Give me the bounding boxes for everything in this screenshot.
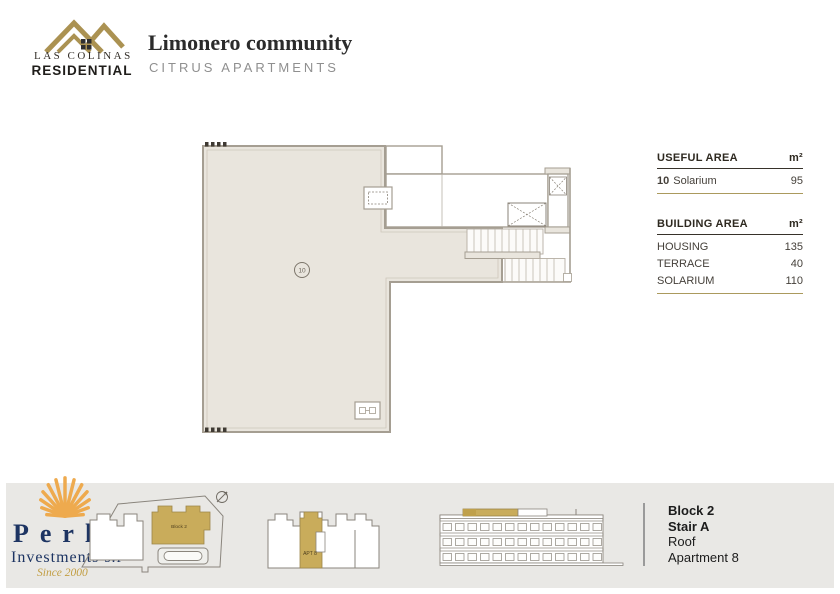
page-title: Limonero community (148, 30, 352, 56)
building-area-table: BUILDING AREA m² HOUSING 135 TERRACE 40 … (657, 218, 803, 294)
block-2-map-label: Block 2 (171, 524, 187, 530)
roof-structure (386, 146, 442, 174)
row-label: TERRACE (657, 258, 710, 270)
row-label: HOUSING (657, 241, 708, 253)
brand-tagline: RESIDENTIAL (30, 63, 134, 78)
site-plan-map: Block 2 (78, 488, 233, 580)
location-floor-line: Roof (668, 534, 739, 550)
location-block-line: Block 2 (668, 503, 739, 519)
table-row: 10Solarium 95 (657, 172, 803, 189)
location-block: Block 2 Stair A Roof Apartment 8 (668, 503, 739, 565)
footer-divider (643, 503, 645, 566)
table-row: TERRACE 40 (657, 255, 803, 272)
row-value: 135 (785, 241, 803, 253)
room-number-label: 10 (298, 268, 306, 275)
row-value: 95 (791, 175, 803, 187)
floor-strip-diagram: APT 8 (262, 500, 392, 575)
useful-area-unit: m² (789, 152, 803, 164)
building-area-unit: m² (789, 218, 803, 230)
row-value: 110 (785, 275, 803, 287)
row-value: 40 (791, 258, 803, 270)
brand-name: LAS COLINAS (34, 50, 130, 62)
location-stair-line: Stair A (668, 519, 739, 535)
block-1-footprint (90, 514, 143, 560)
row-number: 10 (657, 175, 669, 187)
useful-area-title: USEFUL AREA (657, 152, 738, 164)
building-elevation-diagram (437, 500, 627, 570)
row-label: SOLARIUM (657, 275, 714, 287)
utility-box (355, 402, 380, 419)
las-colinas-mountains-icon (44, 16, 124, 54)
row-label: Solarium (673, 175, 716, 187)
brochure-page: LAS COLINAS RESIDENTIAL Limonero communi… (0, 0, 840, 594)
building-area-title: BUILDING AREA (657, 218, 748, 230)
table-row: HOUSING 135 (657, 238, 803, 255)
pool (158, 548, 208, 564)
useful-area-table: USEFUL AREA m² 10Solarium 95 (657, 152, 803, 194)
skylight (508, 203, 546, 226)
apt-8-label: APT 8 (303, 551, 317, 557)
page-subtitle: CITRUS APARTMENTS (149, 60, 339, 75)
location-apartment-line: Apartment 8 (668, 550, 739, 566)
elevator-shaft (545, 168, 570, 233)
compass-icon (217, 492, 228, 503)
floor-plan-drawing: 10 (195, 135, 615, 445)
table-row: SOLARIUM 110 (657, 272, 803, 289)
